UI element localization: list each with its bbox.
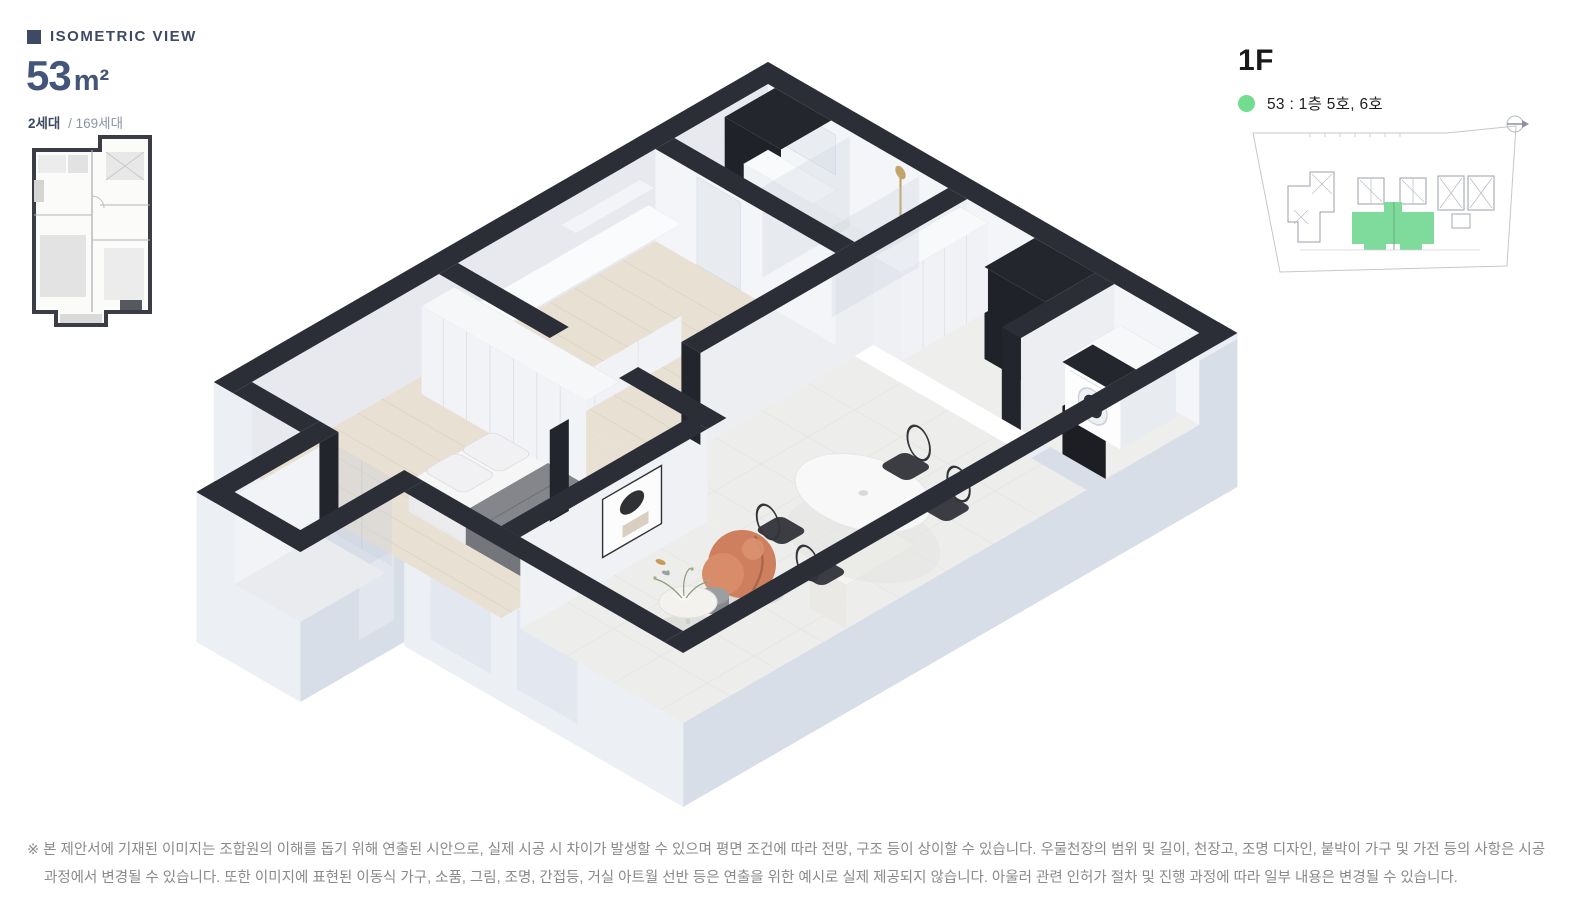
- isometric-view-rendering: [0, 0, 1588, 907]
- unit-plan-thumbnail: [34, 137, 150, 325]
- floor-legend: 53 : 1층 5호, 6호: [1238, 92, 1383, 114]
- area-unit: m²: [74, 65, 109, 97]
- section-header: ISOMETRIC VIEW: [27, 28, 197, 45]
- legend-text: 53 : 1층 5호, 6호: [1267, 92, 1383, 114]
- floor-label: 1F: [1238, 44, 1274, 78]
- section-square-bullet: [27, 30, 41, 44]
- household-count: 2세대 / 169세대: [28, 112, 123, 132]
- presentation-slide: ISOMETRIC VIEW 53m² 2세대 / 169세대 1F 53 : …: [0, 0, 1588, 907]
- key-plan: [1253, 126, 1516, 272]
- household-count-total: / 169세대: [68, 116, 123, 131]
- disclaimer-line-1: ※ 본 제안서에 기재된 이미지는 조합원의 이해를 돕기 위해 연출된 시안으…: [27, 836, 1572, 864]
- unit-area: 53m²: [26, 52, 109, 100]
- key-plan-highlight: [1352, 202, 1434, 250]
- section-title: ISOMETRIC VIEW: [50, 28, 197, 45]
- north-arrow-icon: [1507, 116, 1529, 132]
- disclaimer-line-2: 과정에서 변경될 수 있습니다. 또한 이미지에 표현된 이동식 가구, 소품,…: [27, 864, 1572, 892]
- household-count-unit: 2세대: [28, 116, 60, 131]
- area-number: 53: [26, 52, 71, 99]
- disclaimer: ※ 본 제안서에 기재된 이미지는 조합원의 이해를 돕기 위해 연출된 시안으…: [27, 836, 1572, 893]
- legend-color-dot: [1238, 95, 1255, 112]
